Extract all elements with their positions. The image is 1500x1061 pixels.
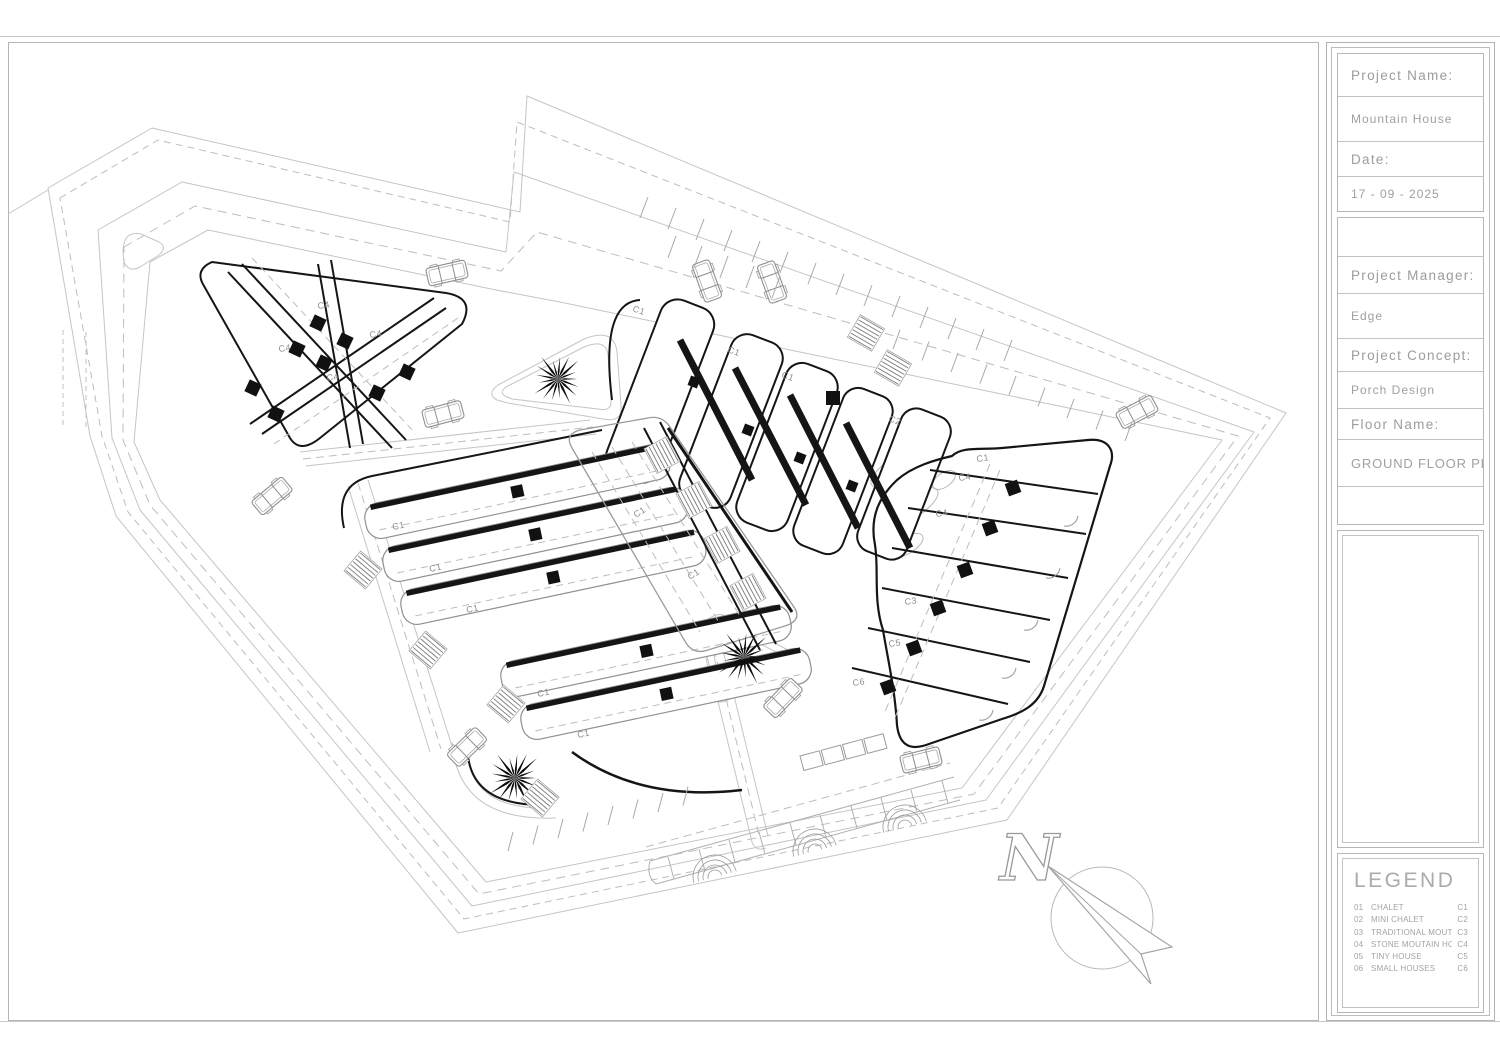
floor-name-value: GROUND FLOOR PLAN — [1338, 440, 1483, 487]
palm-island — [492, 335, 621, 420]
legend-name: MINI CHALET — [1371, 914, 1452, 926]
floor-name-label: Floor Name: — [1338, 409, 1483, 440]
crosswalk-hatch — [521, 779, 559, 817]
building-footprint-square — [309, 314, 326, 331]
margin-tie-line — [8, 190, 48, 214]
project-concept-label: Project Concept: — [1338, 339, 1483, 372]
crosswalk-hatch — [847, 315, 884, 352]
legend-name: TINY HOUSE — [1371, 951, 1452, 963]
car-icon — [425, 258, 469, 288]
date-value: 17 - 09 - 2025 — [1338, 177, 1483, 211]
project-concept-value: Porch Design — [1338, 372, 1483, 409]
project-name-value: Mountain House — [1338, 97, 1483, 142]
legend-name: SMALL HOUSES — [1371, 963, 1452, 975]
unit-label: C5 — [888, 637, 902, 649]
legend-item: 05TINY HOUSEC5 — [1354, 951, 1468, 963]
unit-label: C4 — [935, 507, 949, 519]
parcel-linework — [200, 258, 1112, 805]
legend-title: LEGEND — [1354, 869, 1478, 893]
unit-label: C1 — [536, 687, 550, 699]
legend-code: C1 — [1452, 902, 1468, 914]
legend-name: CHALET — [1371, 902, 1452, 914]
crosswalk-hatch — [344, 551, 382, 589]
building-footprint-square — [826, 391, 840, 405]
legend-num: 02 — [1354, 914, 1371, 926]
building-footprint-square — [906, 640, 923, 657]
car-icon — [250, 475, 295, 518]
project-manager-value: Edge — [1338, 294, 1483, 339]
car-icon — [445, 725, 489, 769]
building-footprint-square — [982, 520, 999, 537]
unit-label: C4 — [369, 328, 383, 340]
building-footprint-square — [398, 363, 415, 380]
building-footprint-square — [336, 332, 353, 349]
project-manager-label: Project Manager: — [1338, 257, 1483, 294]
site-plan-svg: C4C4C4C4C1C1C1C2C1C4C4C3C5C6C1C1C1C1C1C1… — [0, 0, 1500, 1061]
blank-box-inner-border — [1342, 535, 1479, 843]
crosswalk-hatch — [704, 527, 740, 564]
crosswalk-hatch — [874, 350, 911, 387]
legend-code: C2 — [1452, 914, 1468, 926]
legend-num: 04 — [1354, 939, 1371, 951]
title-section-details: Project Manager: Edge Project Concept: P… — [1337, 217, 1484, 525]
palm-tree-icon — [535, 357, 579, 404]
kiosk-cluster — [800, 734, 887, 771]
unit-label: C1 — [465, 603, 479, 615]
legend-code: C4 — [1452, 939, 1468, 951]
date-label: Date: — [1338, 142, 1483, 177]
unit-label: C6 — [852, 676, 866, 688]
door-swing-arcs — [979, 516, 1078, 720]
building-footprint-square — [957, 562, 974, 579]
title-block: Project Name: Mountain House Date: 17 - … — [1326, 42, 1495, 1021]
north-letter: N — [998, 821, 1061, 896]
legend-name: STONE MOUTAIN HOUSE — [1371, 939, 1452, 951]
legend-num: 05 — [1354, 951, 1371, 963]
traffic-island — [123, 234, 163, 270]
legend-inner-border: LEGEND 01CHALETC102MINI CHALETC203TRADIT… — [1342, 858, 1479, 1008]
north-arrow-fold — [1048, 866, 1141, 954]
page: { "title_block": { "project_name_label":… — [0, 0, 1500, 1061]
title-section-project: Project Name: Mountain House Date: 17 - … — [1337, 53, 1484, 212]
legend-item: 06SMALL HOUSESC6 — [1354, 963, 1468, 975]
unit-label: C4 — [326, 371, 340, 383]
north-arrow: N — [998, 821, 1172, 984]
legend-code: C3 — [1452, 927, 1468, 939]
unit-label: C4 — [317, 299, 331, 311]
promenade-band — [646, 763, 960, 884]
sweeping-curb — [572, 752, 742, 792]
legend-item: 02MINI CHALETC2 — [1354, 914, 1468, 926]
legend-item: 03TRADITIONAL MOUTAIN HOUSEC3 — [1354, 927, 1468, 939]
legend-num: 06 — [1354, 963, 1371, 975]
project-name-label: Project Name: — [1338, 54, 1483, 97]
legend-num: 01 — [1354, 902, 1371, 914]
car-icon — [421, 398, 465, 430]
unit-label: C1 — [976, 452, 990, 464]
building-footprint-square — [288, 340, 305, 357]
legend-code: C5 — [1452, 951, 1468, 963]
legend-name: TRADITIONAL MOUTAIN HOUSE — [1371, 927, 1452, 939]
unit-label: C4 — [958, 471, 972, 483]
unit-label: C3 — [904, 595, 918, 607]
unit-label: C1 — [631, 303, 646, 317]
empty-row — [1338, 218, 1483, 257]
sheet-frame — [0, 37, 1500, 1022]
unit-label: C1 — [686, 566, 702, 581]
title-block-inner-border: Project Name: Mountain House Date: 17 - … — [1331, 47, 1490, 1016]
amphitheater-steps — [688, 850, 736, 883]
unit-label: C1 — [576, 728, 590, 740]
empty-row — [1338, 487, 1483, 524]
legend-box: LEGEND 01CHALETC102MINI CHALETC203TRADIT… — [1337, 853, 1484, 1013]
legend-item: 01CHALETC1 — [1354, 902, 1468, 914]
legend-code: C6 — [1452, 963, 1468, 975]
legend-item: 04STONE MOUTAIN HOUSEC4 — [1354, 939, 1468, 951]
title-section-blank — [1337, 530, 1484, 848]
legend-num: 03 — [1354, 927, 1371, 939]
car-icon — [899, 744, 943, 775]
legend-items: 01CHALETC102MINI CHALETC203TRADITIONAL M… — [1343, 902, 1478, 976]
